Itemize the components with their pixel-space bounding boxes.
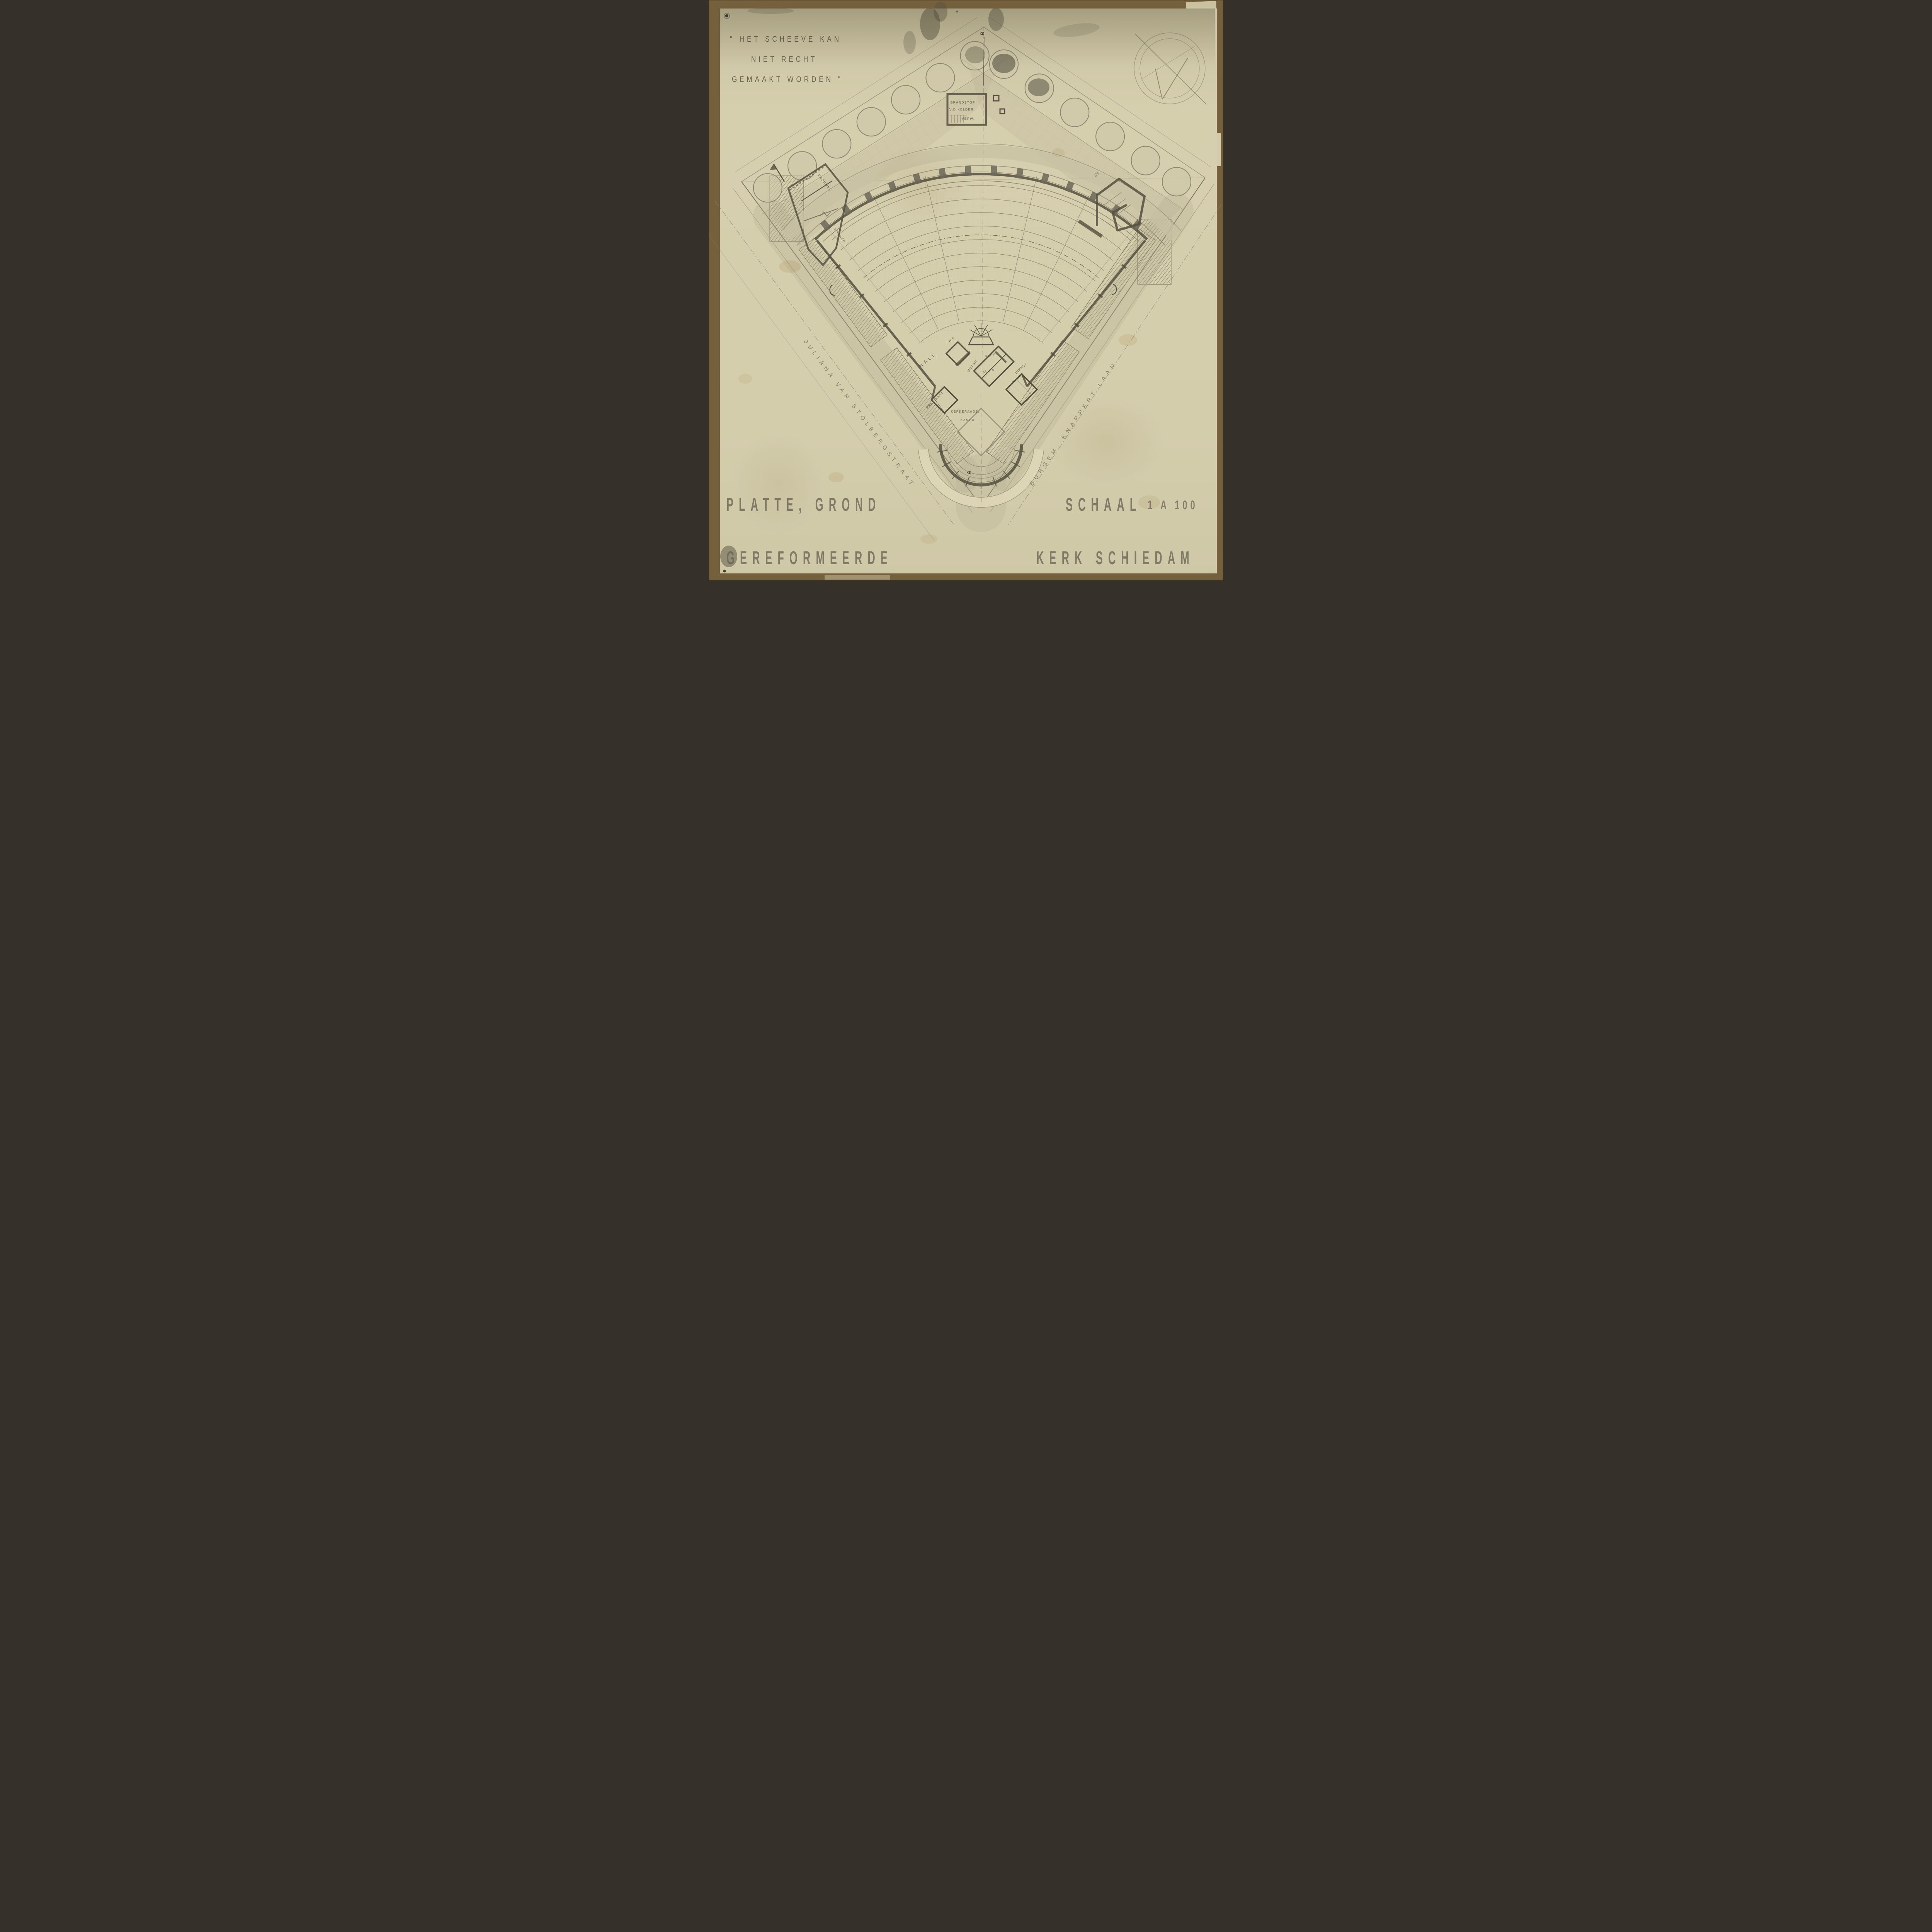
quote-line-1: " HET SCHEEVE KAN: [730, 35, 842, 44]
label-consistory-2: KAMER: [961, 418, 975, 422]
quote-line-2: NIET RECHT: [751, 55, 818, 64]
scale-word: SCHAAL: [1066, 495, 1141, 515]
title-building: GEREFORMEERDE: [726, 548, 893, 568]
section-marker-b: B: [979, 32, 985, 36]
section-marker-a: A: [966, 471, 972, 474]
label-consistory-1: KERKERAADS.: [951, 410, 980, 413]
quote-line-3: GEMAAKT WORDEN ": [732, 75, 843, 84]
label-fuel-2: V.D KELDER: [949, 108, 974, 111]
drawing-sheet: " HET SCHEEVE KAN NIET RECHT GEMAAKT WOR…: [709, 0, 1223, 580]
label-fuel-3: VERW.: [962, 117, 975, 121]
title-location: KERK SCHIEDAM: [1036, 548, 1195, 568]
floor-plan-drawing: " HET SCHEEVE KAN NIET RECHT GEMAAKT WOR…: [709, 0, 1223, 580]
scale-value: 1 A 100: [1148, 498, 1198, 512]
title-plan: PLATTE, GROND: [726, 495, 881, 515]
label-fuel-1: BRANDSTOF: [951, 101, 975, 104]
